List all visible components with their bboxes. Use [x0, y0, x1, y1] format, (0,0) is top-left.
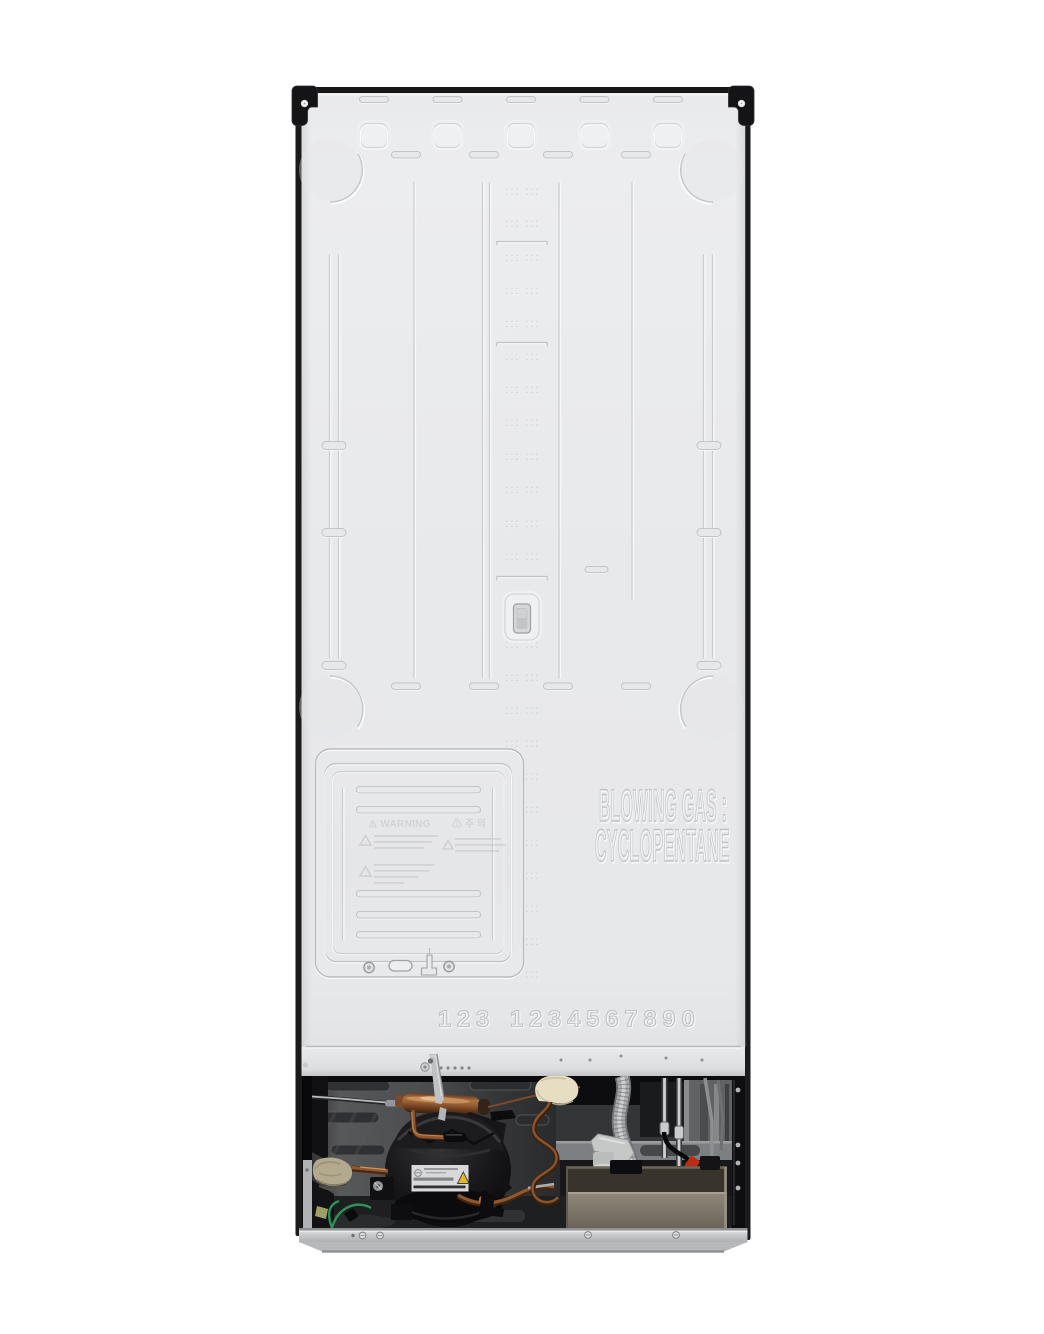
svg-text:⚠ 주 의: ⚠ 주 의 [452, 817, 486, 830]
svg-text:CYCLOPENTANE: CYCLOPENTANE [595, 821, 730, 872]
svg-text:1234567890: 1234567890 [510, 1006, 701, 1032]
svg-text:⚠ WARNING: ⚠ WARNING [368, 819, 431, 830]
svg-text:123: 123 [438, 1006, 495, 1032]
